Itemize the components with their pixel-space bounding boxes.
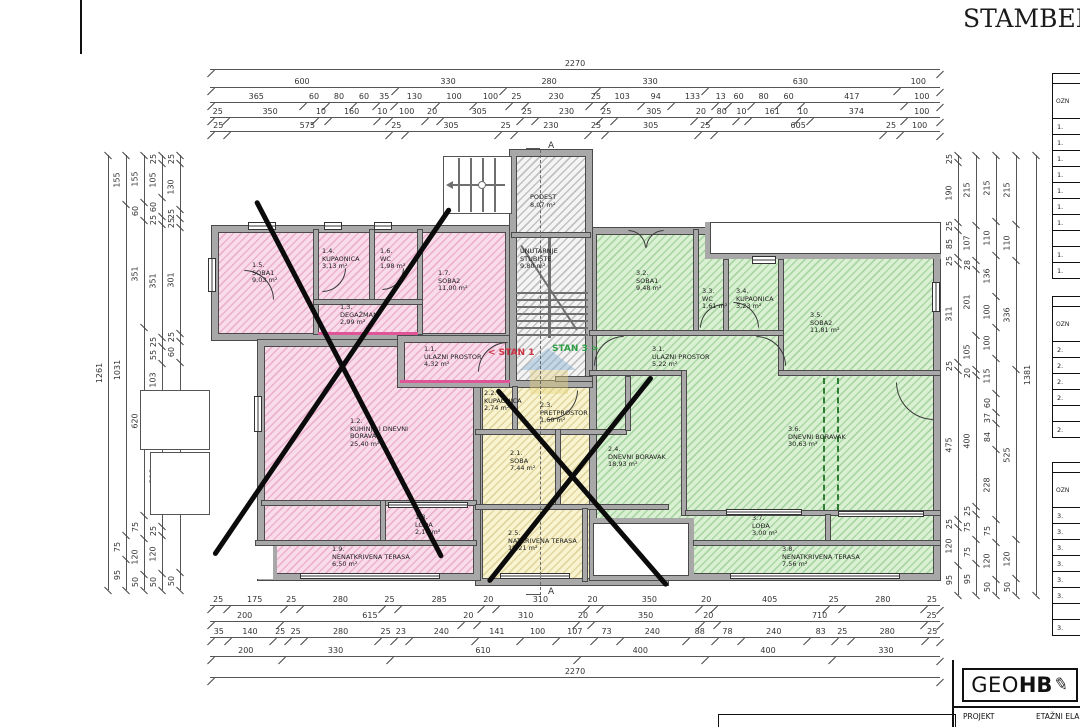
dim-segment: 374 [809,105,903,118]
dim-segment: 25 [598,105,613,118]
dim-segment: 35 [375,90,393,103]
dim-segment: 60 [727,90,750,103]
dim-segment: 115 [980,358,996,393]
dim-segment: 100 [436,90,472,103]
room-label-soba2-1: 1.7.SOBA211,00 m² [438,270,524,293]
window [208,258,216,292]
dim-segment: 105 [146,163,162,197]
sheet-title: STAMBEN [963,4,1080,33]
dim-segment: 50 [128,575,144,590]
dim-segment: 50 [1000,579,1016,595]
window [388,502,468,508]
dim-segment: 105 [960,335,976,369]
dim-segment: 280 [303,625,377,638]
table-header: OZN [1053,84,1080,119]
section-tick-top [526,148,540,149]
wall [694,541,940,545]
dim-segment: 400 [576,644,704,657]
dim-segment: 25 [378,625,393,638]
table-header: OZN [1053,307,1080,342]
dim-segment: 25 [210,105,225,118]
dim-row-bottom-3: 3514025252802523240141100107732408878240… [210,625,940,638]
table-row: 1. [1053,119,1080,135]
dim-segment: 1031 [110,205,126,536]
dim-segment: 475 [942,370,958,519]
dim-segment: 200 [210,609,279,622]
dim-segment: 88 [685,625,714,638]
dim-segment: 120 [942,527,958,565]
legend-table-stan2: OZN2.2.2.2.2. [1052,296,1080,438]
dim-segment: 336 [1000,260,1016,369]
dim-segment: 25 [883,119,900,132]
dim-row-top-5: 255752530525230253052560525100 [210,119,940,132]
dim-segment: 20 [699,593,714,606]
dim-segment: 600 [210,75,394,88]
wall [682,371,686,515]
dim-segment: 240 [741,625,807,638]
dim-segment: 305 [614,105,694,118]
room-label-wc-3: 3.3.WC1,61 m² [702,288,728,311]
dim-segment: 285 [398,593,481,606]
legend-table-stan1: OZN1.1.1.1.1.1.1.1.1. [1052,73,1080,279]
dim-segment: 25 [210,119,227,132]
table-spacer-row [1053,297,1080,307]
dim-segment: 25 [288,625,303,638]
dim-segment: 100 [472,90,508,103]
table-row: 1. [1053,183,1080,199]
dim-segment: 330 [282,644,390,657]
wall [370,230,374,302]
dim-segment: 20 [694,105,708,118]
dim-col-left-3: 155603516207512050 [128,155,145,590]
dim-segment: 60 [303,90,326,103]
dim-segment: 615 [279,609,460,622]
dim-segment: 133 [671,90,714,103]
dim-segment: 305 [439,105,519,118]
window [324,222,342,230]
dim-segment: 120 [146,535,162,574]
dim-segment: 73 [594,625,620,638]
dim-segment: 100 [980,328,996,359]
legend-table-stan3: OZN3.3.3.3.3.3.3. [1052,462,1080,636]
dim-segment: 100 [519,625,555,638]
dim-segment: 1261 [92,155,108,590]
geohb-logo: GEOHB✎ [962,668,1078,702]
notch-stan3-top [705,222,941,259]
floorplan-sheet: STAMBEN 2270 600330280330630100 36560806… [0,0,1080,727]
dim-segment: 100 [899,119,940,132]
dim-segment: 25 [588,90,603,103]
table-row: 3. [1053,572,1080,588]
dim-segment: 95 [942,565,958,595]
dim-segment: 25 [283,593,299,606]
dim-segment: 94 [641,90,671,103]
dim-segment: 228 [980,449,996,519]
table-row: 3. [1053,524,1080,540]
dim-segment: 2270 [210,665,940,678]
dim-segment: 140 [228,625,273,638]
dim-segment: 240 [408,625,474,638]
table-row: 3. [1053,508,1080,524]
dim-segment: 310 [476,609,575,622]
dim-segment: 78 [714,625,741,638]
dim-segment: 155 [110,155,126,205]
dim-segment: 100 [980,297,996,328]
dim-segment: 10 [735,105,747,118]
dim-row-bottom-2: 20061520310203502071025 [210,609,940,622]
exterior-balcony-left-2 [150,452,210,515]
stair-tread [516,334,588,336]
dim-segment: 330 [832,644,940,657]
table-row: 3. [1053,540,1080,556]
dim-segment: 83 [807,625,835,638]
table-row [1053,604,1080,620]
room-label-ulazni-3: 3.1.ULAZNI PROSTOR5,22 m² [652,346,738,369]
dim-segment: 20 [701,609,717,622]
dim-segment: 25 [588,119,605,132]
room-label-podest: PODEST8,07 m² [530,194,616,209]
table-row: 1. [1053,167,1080,183]
dim-segment: 351 [128,220,144,327]
watermark-stan3: STAN 3 > [552,344,599,354]
dim-segment: 215 [1000,155,1016,225]
dim-segment: 10 [376,105,388,118]
dim-segment: 280 [502,75,596,88]
window [300,573,440,579]
dim-segment: 10 [315,105,327,118]
dim-segment: 350 [600,593,699,606]
table-row: 3. [1053,556,1080,572]
terrace-notch-stan1 [252,546,277,579]
room-label-soba2-3: 3.5.SOBA211,81 m² [810,312,896,335]
dim-segment: 80 [708,105,735,118]
dim-segment: 575 [227,119,388,132]
room-label-dnevni-3: 3.6.DNEVNI BORAVAK30,63 m² [788,426,874,449]
dim-row-top-2: 600330280330630100 [210,75,940,88]
dim-col-left-2: 15510317595 [110,155,127,590]
dim-segment: 50 [980,580,996,595]
table-row: 1. [1053,151,1080,167]
logo-text-geo: GEO [971,673,1019,697]
dim-segment: 160 [327,105,376,118]
dim-row-top-4: 2535010160101002030525230253052080101611… [210,105,940,118]
footer-hline [952,706,1080,708]
dim-segment: 311 [942,265,958,363]
dim-segment: 200 [210,644,282,657]
dim-segment: 190 [942,163,958,223]
dim-segment: 136 [980,255,996,297]
dim-segment: 23 [393,625,408,638]
section-line-a [540,150,541,600]
dim-segment: 95 [110,560,126,590]
dim-segment: 95 [960,564,976,595]
dim-row-top-1: 2270 [210,57,940,70]
table-row: 2. [1053,422,1080,438]
dim-row-bottom-4: 200330610400400330 [210,644,940,657]
wall [583,509,587,581]
dim-segment: 230 [514,119,588,132]
dim-segment: 240 [619,625,685,638]
dim-segment: 141 [474,625,519,638]
wall [590,331,783,335]
dim-col-right-3: 2151101361001001156037842287512050 [980,155,997,595]
table-row: 1. [1053,263,1080,279]
logo-text-hb: HB [1019,673,1053,697]
dim-segment: 20 [585,593,600,606]
dim-segment: 605 [714,119,883,132]
dim-segment: 120 [980,543,996,580]
dim-segment: 130 [393,90,436,103]
footer-vline [952,660,954,727]
section-tick-bottom [526,594,540,595]
dim-segment: 85 [942,230,958,257]
dim-col-left-4: 2510560253512555103843182512050 [146,155,163,590]
dim-segment: 25 [826,593,842,606]
table-row [1053,231,1080,247]
window [500,573,570,579]
stair-arrow-dot [478,181,486,189]
dim-segment: 120 [1000,540,1016,579]
dim-col-right-4: 21511033652512050 [1000,155,1017,595]
stair-arrow-head [446,181,453,189]
exterior-balcony-left-1 [140,390,210,450]
dim-segment: 25 [924,593,940,606]
dim-segment: 280 [299,593,381,606]
wall [256,541,476,545]
room-label-stubiste: UNUTARNJE STUBIŠTE9,80 m² [520,248,578,271]
dim-segment: 610 [390,644,577,657]
dim-segment: 215 [960,155,976,225]
wall [476,505,668,509]
dim-segment: 110 [1000,225,1016,261]
dim-segment: 25 [381,593,397,606]
dim-segment: 20 [481,593,496,606]
dim-segment: 155 [128,155,144,202]
dim-segment: 100 [388,105,424,118]
room-label-dnevni-2: 2.4.DNEVNI BORAVAK18,93 m² [608,446,668,469]
pencil-icon: ✎ [1053,674,1071,696]
dim-segment: 25 [697,119,714,132]
wall [590,371,686,375]
dim-segment: 25 [835,625,850,638]
dim-segment: 305 [604,119,697,132]
projekt-label: PROJEKT [963,712,995,721]
dim-segment: 305 [405,119,498,132]
dim-col-right-1: 25190258525311254752512095 [942,155,959,595]
table-row: 2. [1053,390,1080,406]
dim-segment: 120 [128,538,144,574]
dim-segment: 50 [146,574,162,590]
dim-segment: 405 [714,593,826,606]
dim-segment: 280 [842,593,924,606]
titleblock-box [718,714,956,727]
dim-segment: 100 [904,105,940,118]
dim-segment: 400 [960,376,976,507]
table-header: OZN [1053,473,1080,508]
dim-segment: 25 [497,119,514,132]
dim-segment: 330 [394,75,502,88]
dim-segment: 25 [519,105,534,118]
dim-segment: 25 [509,90,524,103]
table-row: 1. [1053,135,1080,151]
dim-segment: 107 [960,225,976,260]
dim-row-top-3: 3656080603513010010025230251039413313608… [210,90,940,103]
dim-segment: 330 [596,75,704,88]
room-label-terasa-1: 1.9.NENATKRIVENA TERASA6,50 m² [332,546,442,569]
dim-segment: 1381 [1020,155,1036,595]
wall-accent-magenta [400,380,510,383]
wall [512,233,590,237]
section-marker-top: A [548,141,554,151]
dim-segment: 280 [850,625,924,638]
window [932,282,940,312]
table-row: 1. [1053,215,1080,231]
dim-segment: 525 [1000,369,1016,539]
dim-segment: 351 [146,224,162,337]
stair-tread [516,299,588,301]
dim-segment: 230 [535,105,599,118]
table-row: 3. [1053,588,1080,604]
dim-segment: 230 [524,90,588,103]
window [254,396,262,432]
dim-segment: 175 [226,593,283,606]
dim-segment: 161 [748,105,797,118]
dim-segment: 80 [325,90,352,103]
dim-segment: 25 [210,593,226,606]
dim-segment: 710 [716,609,923,622]
dim-segment: 50 [164,572,180,590]
section-marker-bottom: A [548,587,554,597]
dim-segment: 2270 [210,57,940,70]
dim-segment: 201 [960,269,976,335]
etazni-label: ETAŽNI ELA [1036,712,1079,721]
wall [381,501,385,545]
dim-col-right-2: 215107282011052040025757595 [960,155,977,595]
table-row: 2. [1053,342,1080,358]
dim-segment: 20 [575,609,591,622]
dim-row-bottom-1: 2517525280252852031020350204052528025 [210,593,940,606]
dim-segment: 25 [272,625,287,638]
dim-segment: 400 [704,644,832,657]
dim-col-right-5: 1381 [1020,155,1037,595]
dim-segment: 215 [980,155,996,221]
dim-segment: 25 [924,625,939,638]
dim-segment: 110 [980,221,996,255]
dim-segment: 100 [904,90,940,103]
stair-tread [516,320,588,322]
dim-segment: 100 [897,75,940,88]
dim-segment: 350 [225,105,314,118]
logo-watermark-body [530,370,568,394]
wall [779,371,940,375]
dim-col-left-5: 251302525301256059550 [164,155,181,590]
dim-segment: 60 [353,90,376,103]
dim-segment: 630 [704,75,896,88]
page-border-line [80,0,82,54]
dim-row-bottom-5: 2270 [210,665,940,678]
table-row: 2. [1053,374,1080,390]
room-label-terasa-3: 3.8.NENATKRIVENA TERASA7,56 m² [782,546,892,569]
dim-segment: 365 [210,90,303,103]
room-label-loda-3: 3.7.LOĐA3,00 m² [752,515,838,538]
dim-segment: 20 [425,105,439,118]
dim-segment: 25 [388,119,405,132]
watermark-stan1: < STAN 1 [488,348,535,358]
dim-segment: 60 [777,90,800,103]
dim-segment: 13 [714,90,727,103]
table-spacer-row [1053,74,1080,84]
table-row [1053,406,1080,422]
table-row: 3. [1053,620,1080,636]
table-spacer-row [1053,463,1080,473]
dim-segment: 350 [591,609,701,622]
table-row: 2. [1053,358,1080,374]
room-label-kupaonica-3: 3.4.KUPAONICA3,23 m² [736,288,780,311]
dim-segment: 35 [210,625,228,638]
dim-segment: 10 [797,105,809,118]
dim-segment: 20 [461,609,477,622]
dim-segment: 103 [604,90,641,103]
table-row: 1. [1053,247,1080,263]
table-row: 1. [1053,199,1080,215]
dim-col-left-1: 1261 [92,155,109,590]
window [838,511,924,517]
dim-segment: 107 [556,625,594,638]
dim-segment: 80 [750,90,777,103]
dim-segment: 417 [800,90,904,103]
notch-stan3-bottom [593,518,694,576]
window [730,573,900,579]
dim-segment: 25 [923,609,940,622]
stair-tread [516,306,588,308]
stair-tread [516,313,588,315]
dim-segment: 130 [164,164,180,210]
window [374,222,392,230]
window [752,256,776,264]
dim-segment: 301 [164,227,180,333]
